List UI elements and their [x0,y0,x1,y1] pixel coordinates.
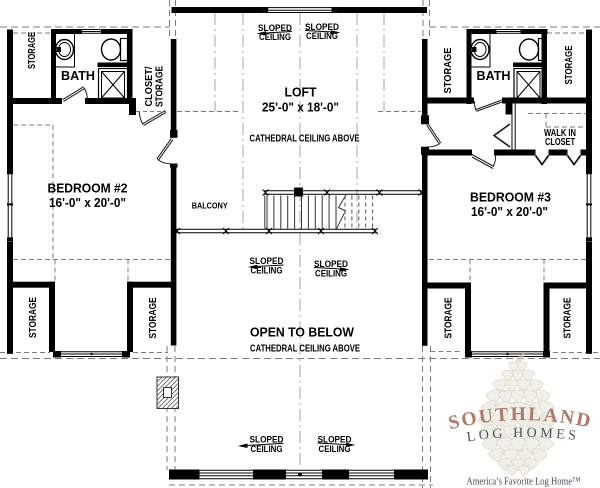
svg-text:BATH: BATH [477,68,511,83]
svg-text:SLOPED: SLOPED [250,435,284,445]
svg-text:STORAGE: STORAGE [148,297,159,338]
svg-text:CATHEDRAL CEILING ABOVE: CATHEDRAL CEILING ABOVE [250,344,360,355]
svg-text:STORAGE: STORAGE [564,45,575,84]
svg-text:STORAGE: STORAGE [444,297,455,338]
svg-text:CEILING: CEILING [251,444,283,454]
svg-text:16'-0" x 20'-0": 16'-0" x 20'-0" [49,195,126,210]
svg-text:America’s Favorite Log Home™: America’s Favorite Log Home™ [467,476,581,488]
svg-text:STORAGE: STORAGE [443,47,454,93]
svg-text:CEILING: CEILING [319,444,351,454]
svg-text:16'-0" x 20'-0": 16'-0" x 20'-0" [471,204,548,219]
svg-text:LOFT: LOFT [285,85,317,100]
svg-text:BATH: BATH [61,68,95,83]
svg-text:CLOSET/: CLOSET/ [144,66,155,106]
svg-text:SLOPED: SLOPED [250,256,284,266]
svg-text:STORAGE: STORAGE [27,32,38,69]
svg-text:STORAGE: STORAGE [563,297,574,338]
svg-text:BALCONY: BALCONY [192,200,228,210]
svg-text:CLOSET: CLOSET [545,137,575,148]
svg-text:BEDROOM #2: BEDROOM #2 [48,181,128,196]
svg-text:CATHEDRAL CEILING ABOVE: CATHEDRAL CEILING ABOVE [250,134,360,145]
svg-text:STORAGE: STORAGE [155,66,166,107]
svg-text:BEDROOM #3: BEDROOM #3 [470,190,551,205]
svg-text:STORAGE: STORAGE [28,297,39,338]
svg-text:25'-0" x 18'-0": 25'-0" x 18'-0" [262,100,339,115]
svg-text:OPEN TO BELOW: OPEN TO BELOW [250,325,355,340]
